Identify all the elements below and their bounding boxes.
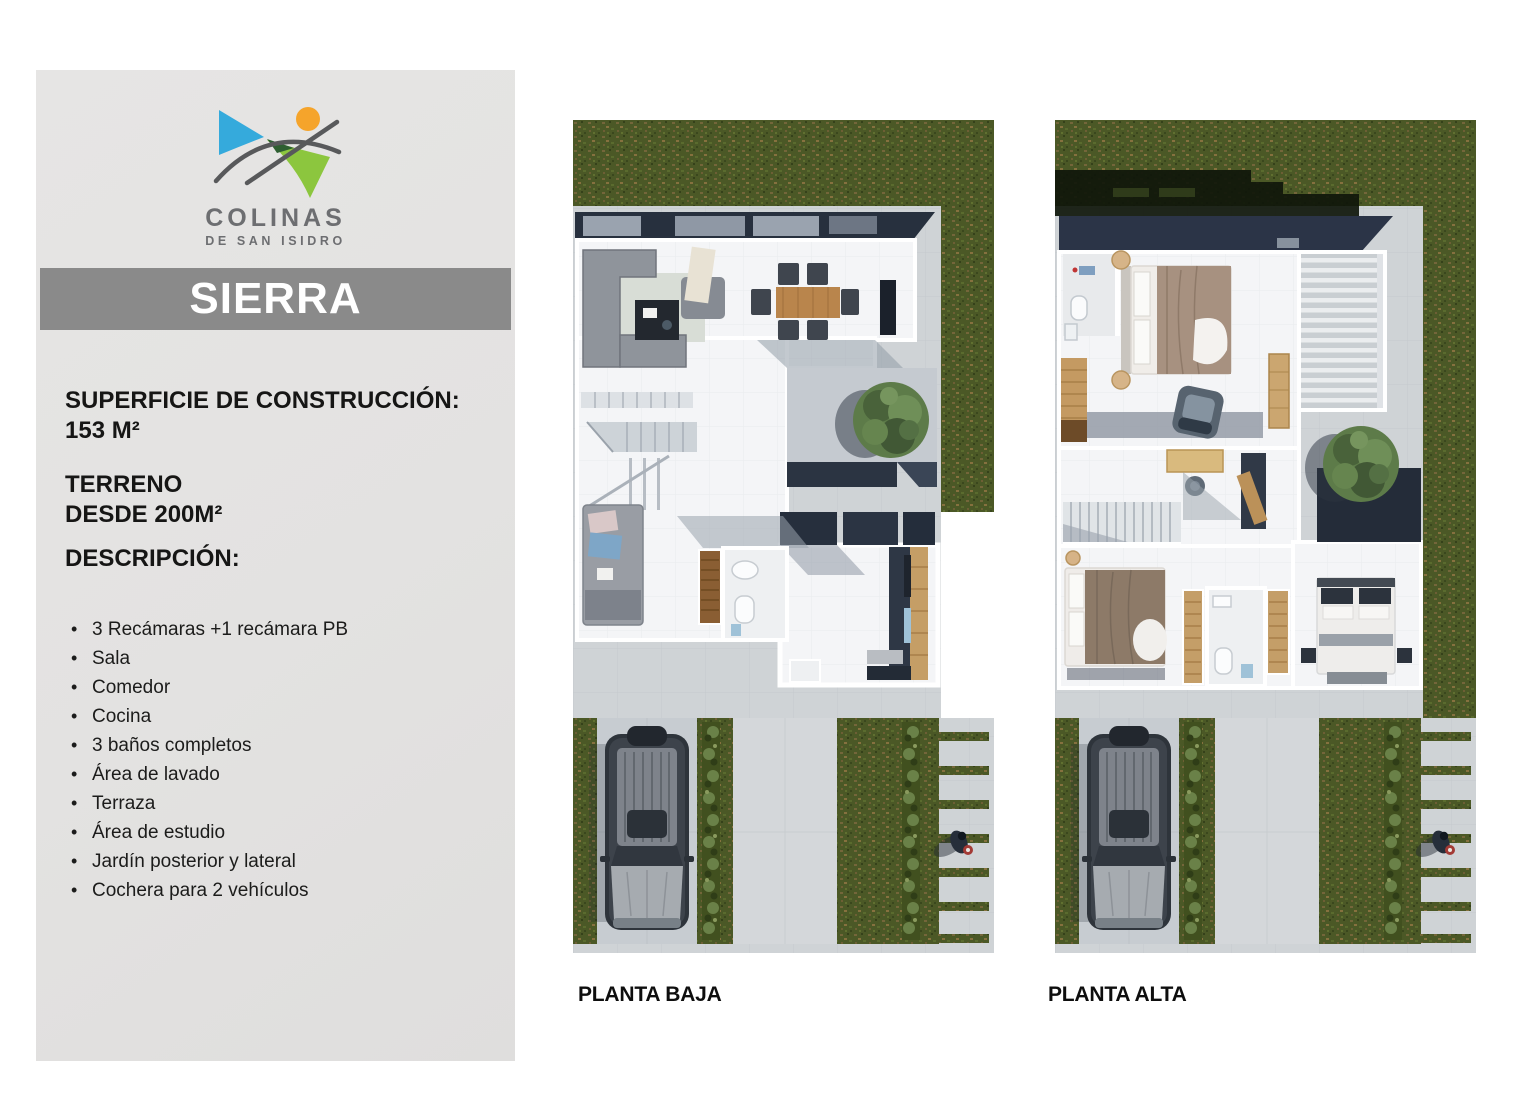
upper-floor-plan	[1055, 120, 1476, 953]
feature-list: 3 Recámaras +1 recámara PBSalaComedorCoc…	[66, 620, 348, 910]
feature-item: Área de estudio	[66, 823, 348, 843]
feature-item: Comedor	[66, 678, 348, 698]
feature-item: 3 baños completos	[66, 736, 348, 756]
info-panel: COLINAS DE SAN ISIDRO SIERRA SUPERFICIE …	[36, 70, 515, 1061]
description-label: DESCRIPCIÓN:	[65, 544, 460, 574]
model-name: SIERRA	[189, 274, 361, 324]
brand-tagline: DE SAN ISIDRO	[36, 234, 515, 248]
brand-name: COLINAS	[36, 204, 515, 233]
specs-block: SUPERFICIE DE CONSTRUCCIÓN: 153 M² TERRE…	[65, 386, 460, 574]
feature-item: 3 Recámaras +1 recámara PB	[66, 620, 348, 640]
bedroom2-bed	[1065, 551, 1167, 680]
stairs-upper	[1063, 502, 1181, 547]
feature-item: Sala	[66, 649, 348, 669]
model-title-bar: SIERRA	[40, 268, 511, 330]
feature-item: Terraza	[66, 794, 348, 814]
colinas-logo-icon	[210, 94, 342, 198]
pergola	[1299, 252, 1385, 410]
feature-item: Área de lavado	[66, 765, 348, 785]
construction-label: SUPERFICIE DE CONSTRUCCIÓN:	[65, 386, 460, 416]
feature-item: Cocina	[66, 707, 348, 727]
upper-floor-label: PLANTA ALTA	[1048, 983, 1187, 1007]
floor-plans	[573, 120, 1476, 953]
land-label: TERRENO	[65, 470, 460, 500]
land-value: DESDE 200M²	[65, 500, 460, 530]
logo-shapes	[216, 107, 339, 198]
bedroom3-bed	[1301, 578, 1412, 684]
construction-spec: SUPERFICIE DE CONSTRUCCIÓN: 153 M²	[65, 386, 460, 446]
land-spec: TERRENO DESDE 200M²	[65, 470, 460, 530]
feature-item: Cochera para 2 vehículos	[66, 881, 348, 901]
master-bed	[1112, 251, 1231, 389]
feature-item: Jardín posterior y lateral	[66, 852, 348, 872]
brochure-page: COLINAS DE SAN ISIDRO SIERRA SUPERFICIE …	[0, 0, 1534, 1117]
ground-floor-plan	[573, 120, 994, 953]
ground-floor-label: PLANTA BAJA	[578, 983, 722, 1007]
construction-value: 153 M²	[65, 416, 460, 446]
